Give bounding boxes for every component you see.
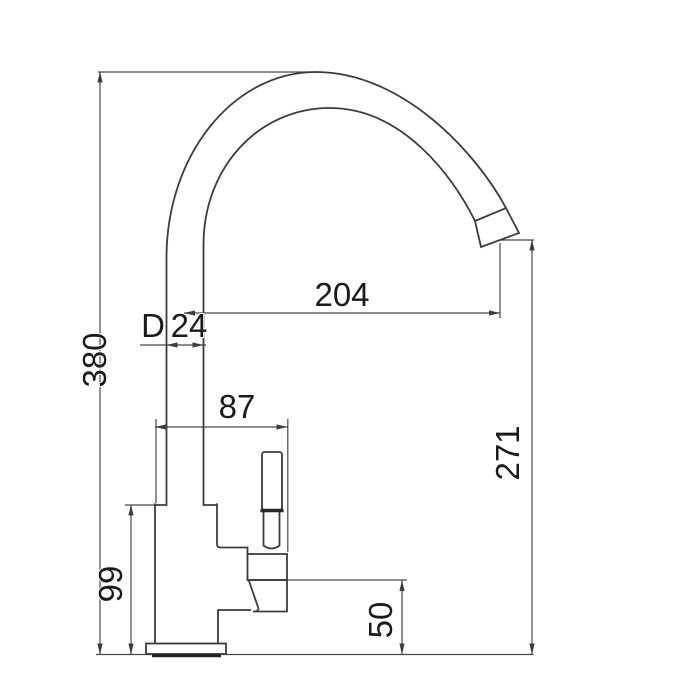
pipe-diameter-label: 24 [171, 307, 208, 344]
handle-stem [264, 512, 280, 549]
cartridge-housing [248, 554, 288, 580]
label-layer: 380 204 D 24 87 271 99 50 [76, 276, 526, 638]
arrow-up-icon [399, 580, 404, 591]
arrow-up-icon [97, 72, 102, 83]
arrow-left-icon [155, 424, 166, 429]
dimension-layer [96, 72, 535, 655]
pipe-diameter-prefix-label: D [141, 307, 165, 344]
handle-height-label: 50 [362, 602, 399, 639]
body-lower-step [218, 610, 251, 644]
outlet-height-label: 271 [489, 425, 526, 480]
body-width-label: 87 [219, 388, 256, 425]
lever-detail [249, 580, 287, 612]
spout-reach-label: 204 [314, 276, 369, 313]
technical-drawing-canvas: 380 204 D 24 87 271 99 50 [0, 0, 700, 700]
arrow-down-icon [128, 644, 133, 655]
dim-handle-height [399, 580, 404, 655]
base-plate [146, 644, 226, 655]
faucet-outline [146, 72, 519, 656]
spout-aerator-tip [475, 208, 519, 247]
arrow-down-icon [97, 644, 102, 655]
body-height-label: 99 [92, 566, 129, 603]
handle-grip [262, 452, 282, 510]
faucet-dimension-drawing: 380 204 D 24 87 271 99 50 [0, 0, 700, 700]
arrow-right-icon [277, 424, 288, 429]
dim-body-height [125, 505, 155, 655]
arrow-down-icon [399, 644, 404, 655]
arrow-up-icon [128, 505, 133, 516]
overall-height-label: 380 [76, 332, 113, 387]
arrow-down-icon [529, 644, 534, 655]
arrow-right-icon [489, 310, 500, 315]
arrow-up-icon [529, 240, 534, 251]
body-right-shoulder [217, 504, 248, 554]
